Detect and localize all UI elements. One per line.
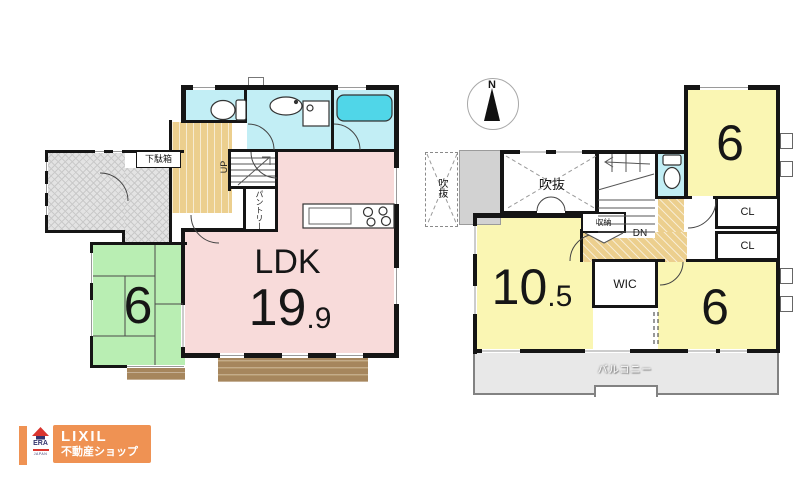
window [520, 150, 546, 154]
window [45, 184, 48, 193]
wall-segment [228, 149, 399, 152]
wall-segment [169, 120, 172, 245]
lixil-banner: LIXIL 不動産ショップ [53, 425, 151, 463]
lixil-wordmark: LIXIL [61, 429, 151, 446]
bedroom-se-size-label: 6 [685, 282, 745, 332]
wall-segment [580, 229, 583, 262]
wall-segment [181, 85, 186, 123]
era-emblem: ERA JAPAN [30, 425, 51, 466]
window [394, 268, 399, 304]
era-house-icon [32, 427, 49, 440]
compass-north-label: N [483, 79, 501, 91]
wall-segment [243, 189, 246, 232]
ldk-room-label: LDK [240, 244, 335, 280]
ldk-size-frac: .9 [306, 304, 331, 334]
window [90, 253, 93, 283]
window [394, 168, 399, 204]
entrance-porch-inner [125, 168, 172, 245]
balcony-notch [594, 385, 658, 397]
sliding-door [181, 305, 185, 347]
wall-segment [275, 149, 278, 232]
window [45, 206, 48, 215]
wall-segment [500, 150, 504, 217]
window [556, 150, 582, 154]
window [95, 150, 104, 153]
window [45, 162, 48, 171]
window [90, 300, 93, 336]
wall-segment [244, 87, 247, 122]
wall-segment [655, 150, 658, 199]
closet-a-label: CL [718, 204, 777, 220]
lixil-service-label: 不動産ショップ [61, 446, 151, 459]
window [482, 349, 520, 353]
ldk-size-int: 19 [249, 282, 307, 334]
wall-segment [595, 150, 599, 217]
entrance-porch-outer [48, 153, 125, 230]
window [282, 353, 308, 358]
shoe-cabinet-label: 下駄箱 [136, 151, 181, 168]
window [688, 349, 716, 353]
window [700, 85, 748, 90]
wall-segment [504, 211, 537, 215]
window [720, 349, 747, 353]
wall-segment [331, 87, 334, 152]
window [127, 365, 184, 368]
era-country-label: JAPAN [34, 452, 48, 456]
stairs-up-label: UP [217, 155, 231, 179]
era-wordmark: ERA [33, 440, 48, 448]
storage-label: 収納 [582, 214, 625, 231]
bedroom-ne-size-label: 6 [700, 118, 760, 168]
casement-window [780, 268, 793, 284]
bedroom-main-size-frac: .5 [547, 282, 572, 312]
window [113, 150, 122, 153]
bedroom-main-size-int: 10 [492, 262, 548, 312]
wall-segment [394, 85, 399, 358]
wic-label: WIC [596, 276, 654, 292]
casement-window [780, 161, 793, 177]
stairs-1f [231, 152, 275, 188]
wall-segment [181, 120, 247, 123]
casement-window [780, 133, 793, 149]
window [338, 85, 366, 90]
brand-logo: ERA JAPAN LIXIL 不動産ショップ [0, 415, 220, 475]
era-rule [33, 449, 49, 451]
void-west-label: 吹抜 [434, 166, 448, 210]
stairs-down-label: DN [626, 227, 654, 241]
balcony-label: バルコニー [560, 364, 690, 378]
wall-segment [90, 242, 187, 245]
logo-accent-bar [19, 426, 27, 465]
window [473, 226, 477, 254]
wall-segment [90, 365, 130, 368]
room-toilet-2f [658, 152, 684, 196]
wall-segment [684, 85, 688, 199]
bedroom-main-size-label: 10.5 [468, 262, 596, 312]
closet-b-label: CL [718, 238, 777, 254]
window [585, 349, 630, 353]
tatami-size-label: 6 [108, 280, 168, 332]
room-washroom-1f [247, 89, 331, 149]
casement-window [780, 296, 793, 312]
void-main-label: 吹抜 [522, 176, 582, 192]
pantry-label: パントリー [252, 187, 266, 233]
deck-small [127, 368, 185, 380]
window [193, 85, 215, 90]
floorplan-canvas: N 下駄箱 UP パントリー LDK 19.9 6 吹抜 吹抜 収納 DN WI… [0, 0, 809, 482]
wall-segment [181, 228, 245, 232]
wall-segment [655, 196, 687, 199]
deck-large [218, 354, 368, 382]
window [220, 353, 244, 358]
room-toilet-1f [185, 89, 244, 120]
window [336, 353, 363, 358]
hallway-2f-vertical [658, 199, 684, 232]
room-bathroom-1f [334, 89, 394, 149]
wall-segment [45, 230, 125, 233]
ldk-size-label: 19.9 [225, 282, 355, 334]
